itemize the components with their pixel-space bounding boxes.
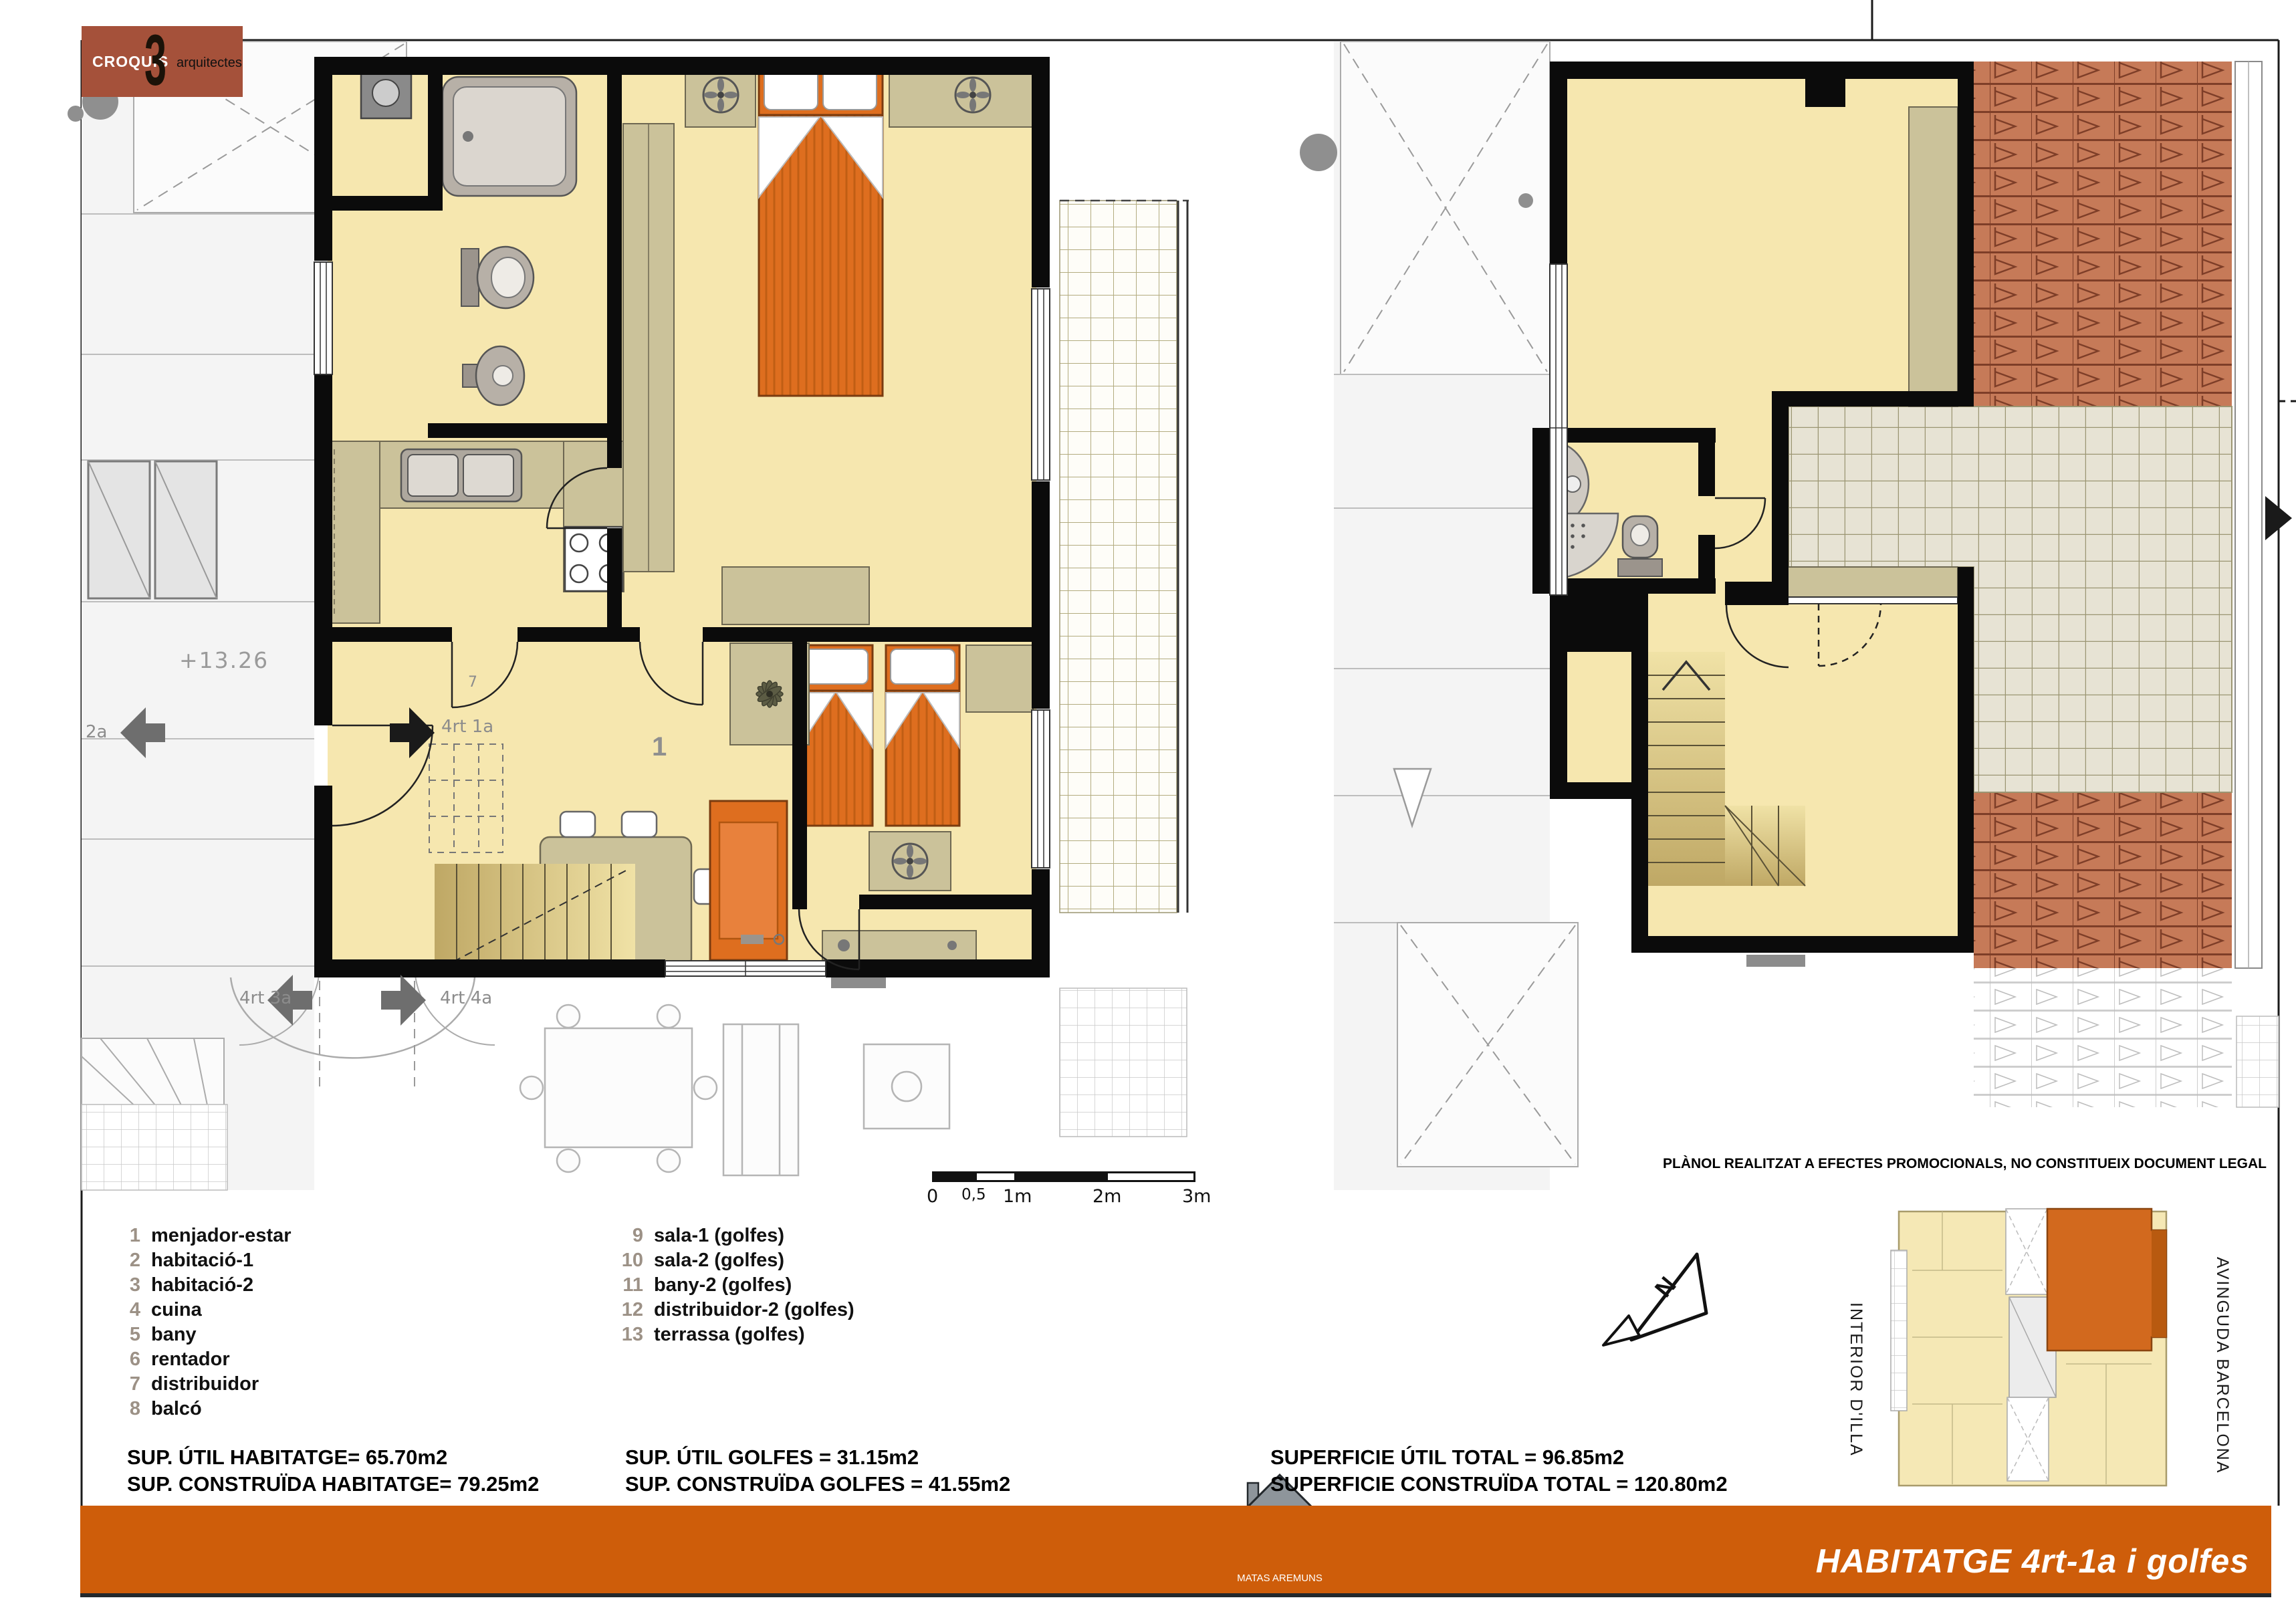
- key-plan: [1891, 1209, 2166, 1486]
- legend-number: 2: [99, 1250, 140, 1272]
- legend-item: 4cuina: [99, 1299, 292, 1324]
- logo-three-glyph: 3: [144, 18, 166, 102]
- area-line: SUPERFICIE CONSTRUÏDA TOTAL = 120.80m2: [1270, 1471, 1728, 1498]
- unit-label-4rt-1a: 4rt 1a: [441, 717, 493, 737]
- legend-number: 8: [99, 1398, 140, 1420]
- legend-column-1: 1menjador-estar 2habitació-1 3habitació-…: [99, 1225, 292, 1423]
- legend-item: 13terrassa (golfes): [602, 1324, 854, 1349]
- unit-label-4rt-4a: 4rt 4a: [440, 988, 492, 1008]
- scalebar-label-2m: 2m: [1093, 1186, 1121, 1207]
- legend-item: 5bany: [99, 1324, 292, 1349]
- legend-label: sala-2 (golfes): [654, 1250, 784, 1272]
- plan-sheet: CROQUIS 3 arquitectes +13.26 2a 4rt 1a 7…: [0, 0, 2296, 1624]
- legend-label: rentador: [151, 1349, 230, 1371]
- legend-number: 6: [99, 1349, 140, 1371]
- legend-number: 5: [99, 1324, 140, 1346]
- area-line: SUP. ÚTIL GOLFES = 31.15m2: [625, 1444, 1010, 1471]
- sheet-title: HABITATGE 4rt-1a i golfes: [1816, 1542, 2249, 1581]
- scalebar-seg-3: [1016, 1171, 1106, 1182]
- golfes-plan: [1532, 62, 2292, 968]
- legend-item: 3habitació-2: [99, 1274, 292, 1299]
- scalebar-seg-4: [1106, 1171, 1195, 1182]
- croquis-logo: CROQUIS 3 arquitectes: [82, 26, 243, 97]
- areas-golfes: SUP. ÚTIL GOLFES = 31.15m2 SUP. CONSTRUÏ…: [625, 1444, 1010, 1498]
- terrace-balco: [1060, 201, 1189, 913]
- legend-label: balcó: [151, 1398, 202, 1420]
- legend-item: 6rentador: [99, 1349, 292, 1373]
- scalebar-label-3m: 3m: [1182, 1186, 1211, 1207]
- room-number-7: 7: [468, 674, 477, 691]
- legend-item: 1menjador-estar: [99, 1225, 292, 1250]
- area-line: SUP. CONSTRUÏDA HABITATGE= 79.25m2: [127, 1471, 539, 1498]
- key-plan-highlighted-unit: [2047, 1209, 2166, 1351]
- disclaimer-text: PLÀNOL REALITZAT A EFECTES PROMOCIONALS,…: [1504, 1156, 2267, 1172]
- scalebar-label-05: 0,5: [961, 1186, 986, 1203]
- legend-column-2: 9sala-1 (golfes) 10sala-2 (golfes) 11ban…: [602, 1225, 854, 1349]
- legend-item: 2habitació-1: [99, 1250, 292, 1274]
- legend-label: distribuidor: [151, 1373, 259, 1395]
- apartment-plan: [314, 57, 1050, 977]
- legend-item: 11bany-2 (golfes): [602, 1274, 854, 1299]
- legend-number: 13: [602, 1324, 643, 1346]
- north-arrow-icon: [1603, 1254, 1706, 1345]
- area-line: SUP. CONSTRUÏDA GOLFES = 41.55m2: [625, 1471, 1010, 1498]
- roof-tiles-bottom: [1974, 792, 2232, 968]
- legend-item: 9sala-1 (golfes): [602, 1225, 854, 1250]
- builder-name: MATAS AREMUNS: [1234, 1573, 1325, 1584]
- legend-label: menjador-estar: [151, 1225, 292, 1247]
- legend-label: cuina: [151, 1299, 202, 1321]
- legend-label: distribuidor-2 (golfes): [654, 1299, 854, 1321]
- street-label-interior-dilla: INTERIOR D'ILLA: [1846, 1302, 1865, 1457]
- areas-habitatge: SUP. ÚTIL HABITATGE= 65.70m2 SUP. CONSTR…: [127, 1444, 539, 1498]
- legend-item: 12distribuidor-2 (golfes): [602, 1299, 854, 1324]
- level-label: +13.26: [179, 647, 269, 673]
- area-line: SUPERFICIE ÚTIL TOTAL = 96.85m2: [1270, 1444, 1728, 1471]
- legend-number: 11: [602, 1274, 643, 1296]
- area-line: SUP. ÚTIL HABITATGE= 65.70m2: [127, 1444, 539, 1471]
- legend-number: 4: [99, 1299, 140, 1321]
- legend-item: 10sala-2 (golfes): [602, 1250, 854, 1274]
- scalebar-seg-1: [932, 1171, 975, 1182]
- legend-label: terrassa (golfes): [654, 1324, 805, 1346]
- legend-label: habitació-2: [151, 1274, 253, 1296]
- logo-arquitectes-text: arquitectes: [177, 55, 242, 71]
- roof-tiles-top: [1974, 62, 2232, 407]
- scalebar-label-0: 0: [927, 1186, 938, 1207]
- areas-total: SUPERFICIE ÚTIL TOTAL = 96.85m2 SUPERFIC…: [1270, 1444, 1728, 1498]
- unit-label-4rt-3a: 4rt 3a: [239, 988, 292, 1008]
- stairs-to-golfes: [435, 864, 635, 971]
- street-label-avinguda-barcelona: AVINGUDA BARCELONA: [2212, 1257, 2232, 1474]
- scalebar-seg-2: [975, 1171, 1016, 1182]
- sheet-graphics: [0, 0, 2296, 1624]
- scalebar-label-1m: 1m: [1003, 1186, 1032, 1207]
- legend-label: bany-2 (golfes): [654, 1274, 792, 1296]
- legend-number: 10: [602, 1250, 643, 1272]
- unit-label-2a: 2a: [86, 722, 107, 742]
- legend-number: 3: [99, 1274, 140, 1296]
- room-number-1: 1: [652, 732, 667, 762]
- legend-number: 7: [99, 1373, 140, 1395]
- legend-number: 9: [602, 1225, 643, 1247]
- legend-label: sala-1 (golfes): [654, 1225, 784, 1247]
- legend-number: 12: [602, 1299, 643, 1321]
- legend-label: habitació-1: [151, 1250, 253, 1272]
- legend-item: 7distribuidor: [99, 1373, 292, 1398]
- legend-item: 8balcó: [99, 1398, 292, 1423]
- legend-number: 1: [99, 1225, 140, 1247]
- legend-label: bany: [151, 1324, 197, 1346]
